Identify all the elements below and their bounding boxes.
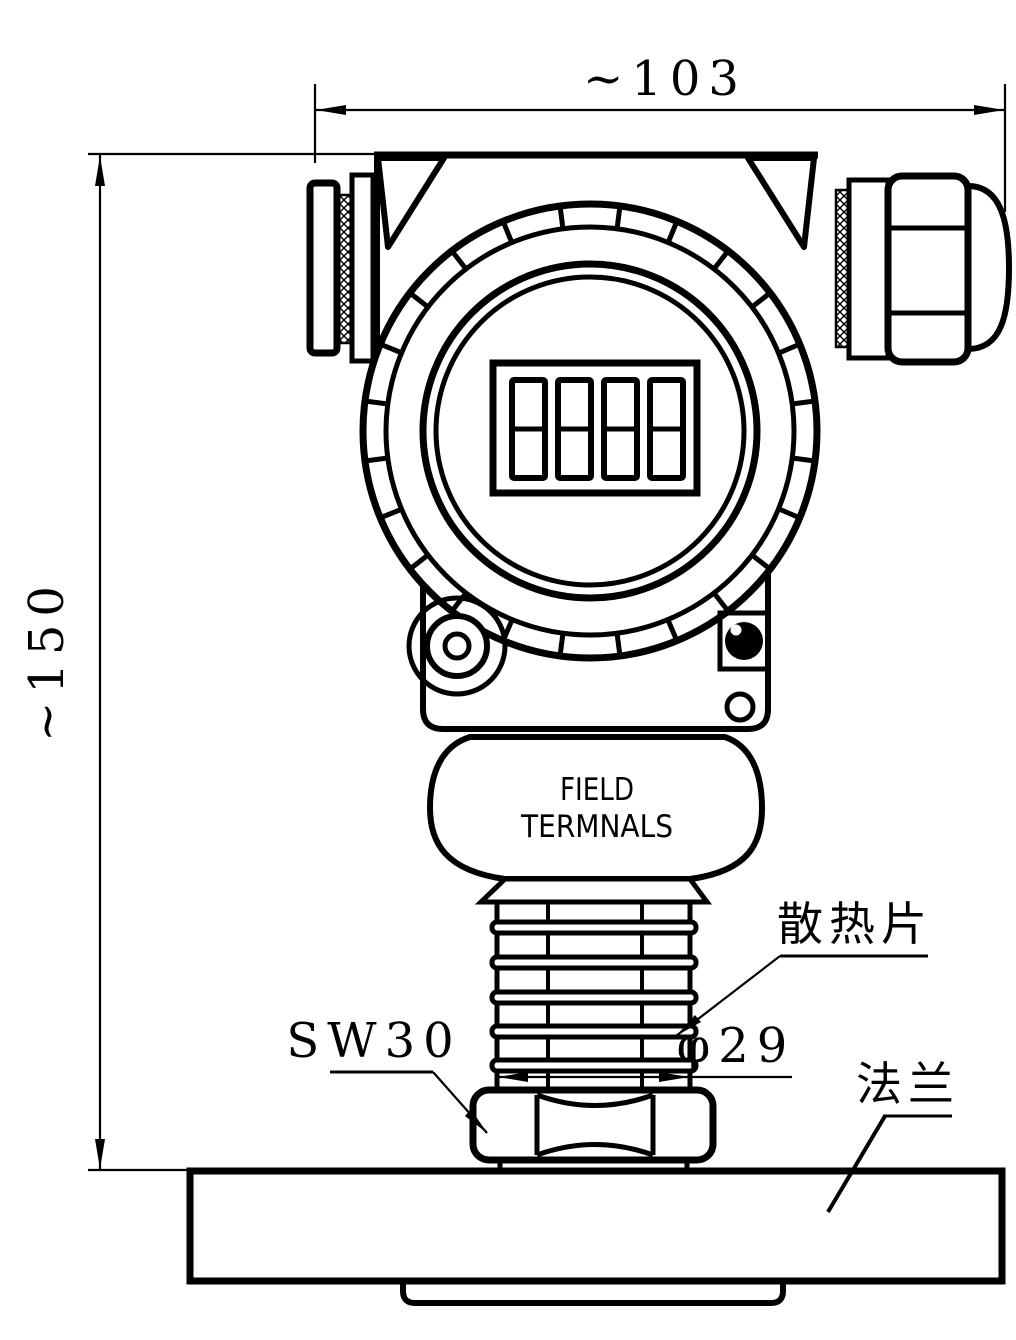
arrowhead-bottom [95,1139,105,1169]
field-terminals-label-line2: TERMNALS [520,809,673,845]
plug-cap [310,183,337,353]
blind-plug [310,175,373,361]
arrowhead-right [974,105,1004,115]
flange-plate [190,1171,1002,1281]
indicator-dot [725,622,763,660]
arrowhead-left [316,105,346,115]
flange-label: 法兰 [856,1057,960,1111]
technical-drawing-page: FIELD TERMNALS [0,0,1016,1340]
gland-collar [849,180,888,358]
neck-collar [481,879,707,902]
process-flange [190,1171,1002,1303]
field-terminals-label-line1: FIELD [560,772,634,808]
arrowhead-top [95,156,105,186]
cap-right-facet [748,158,814,247]
bolt-head [427,616,487,676]
gland-dome-cap [968,186,1009,349]
lcd-display [493,363,697,493]
heatsink-label: 散热片 [777,897,933,951]
pressure-transmitter-drawing: FIELD TERMNALS [0,0,1016,1340]
cable-gland [836,176,1009,362]
gland-nut [888,176,968,362]
wrench-size-callout: SW30 [286,1013,487,1133]
plug-collar [352,175,373,361]
neck-diameter-text: φ29 [677,1018,796,1074]
heatsink-neck [481,879,707,1090]
hex-nut [473,1090,713,1172]
terminal-housing: FIELD TERMNALS [430,737,762,879]
terminal-oval [430,737,762,879]
heatsink-fins [492,922,696,1071]
indicator-highlight [731,625,742,636]
height-dimension-text: ~150 [19,578,75,742]
cap-left-facet [378,158,444,247]
wrench-size-label: SW30 [286,1013,461,1069]
heatsink-callout: 散热片 [676,897,933,1036]
width-dimension-text: ~103 [583,51,747,107]
hex-nut-outline [473,1090,713,1160]
